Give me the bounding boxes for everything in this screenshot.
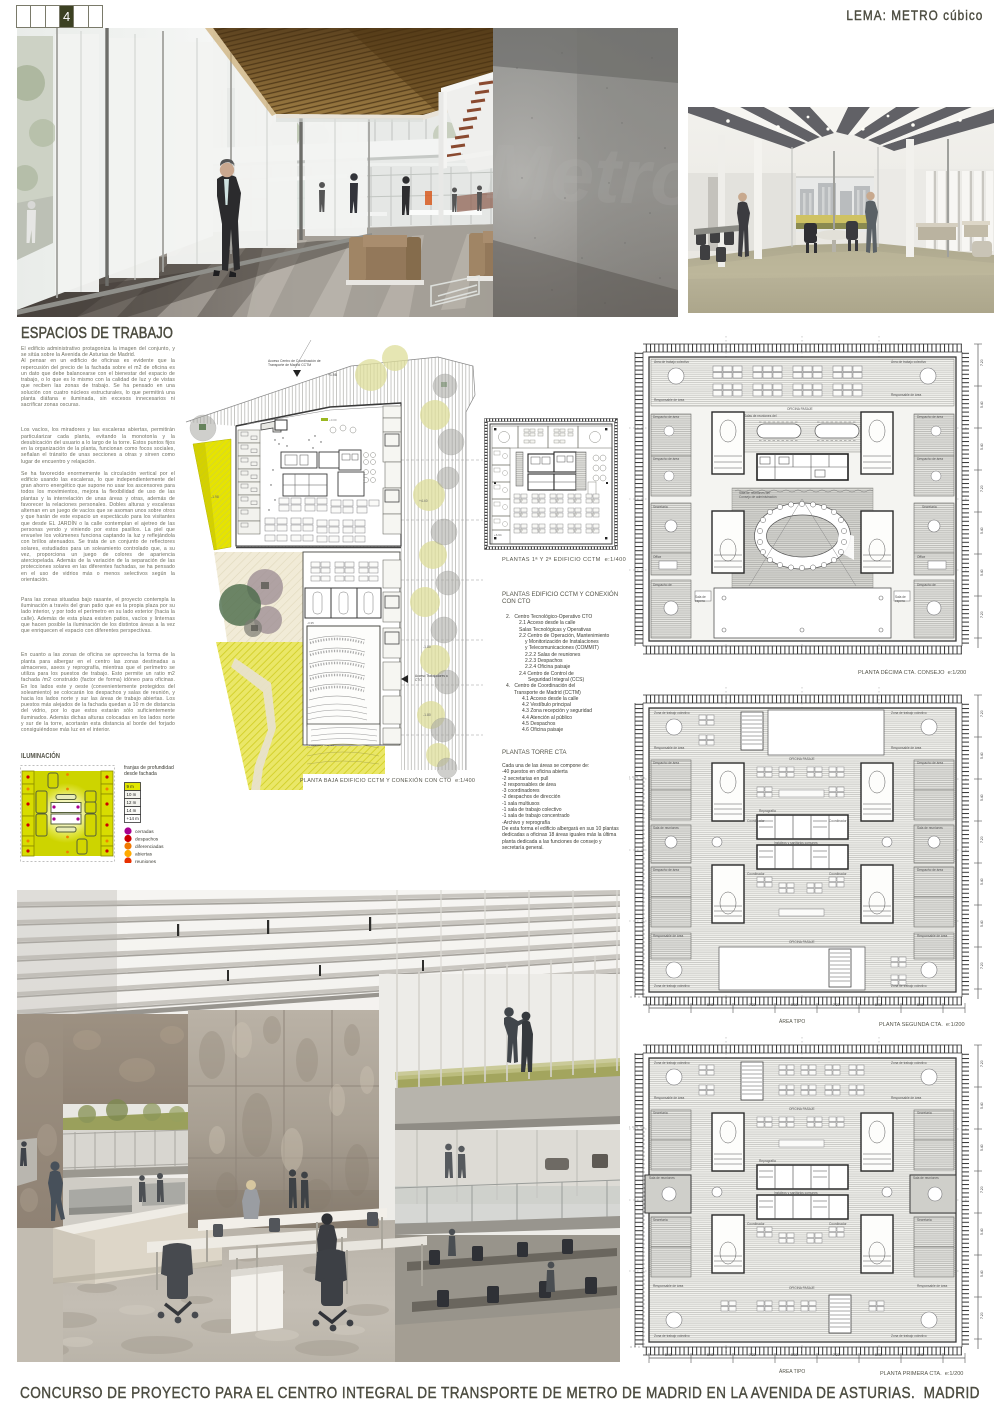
svg-text:-1.98: -1.98 [211, 495, 219, 499]
svg-text:Coordinador: Coordinador [747, 819, 765, 823]
svg-text:5.40: 5.40 [875, 1003, 882, 1007]
svg-text:5.40: 5.40 [980, 1144, 984, 1151]
svg-text:Coordinador: Coordinador [829, 819, 847, 823]
svg-text:Sala de reuniones: Sala de reuniones [913, 1176, 939, 1180]
svg-text:cerradas: cerradas [135, 829, 154, 835]
svg-text:5.40: 5.40 [980, 401, 984, 408]
svg-text:abiertas: abiertas [135, 852, 153, 858]
svg-text:Zona de trabajo colectivo: Zona de trabajo colectivo [654, 1061, 690, 1065]
svg-text:7.20: 7.20 [749, 1353, 756, 1357]
svg-text:despachos: despachos [135, 837, 159, 843]
svg-text:Responsable de área: Responsable de área [654, 746, 685, 750]
svg-text:Secretaría: Secretaría [653, 505, 668, 509]
svg-text:Responsable de área: Responsable de área [917, 1284, 948, 1288]
svg-text:Despacho de área: Despacho de área [653, 457, 679, 461]
svg-text:Office: Office [917, 555, 925, 559]
svg-text:7.20: 7.20 [980, 359, 984, 366]
svg-text:Responsable de área: Responsable de área [653, 1284, 684, 1288]
svg-text:OFICINA PASAJE: OFICINA PASAJE [789, 940, 815, 944]
svg-text:Zona de trabajo colectivo: Zona de trabajo colectivo [891, 984, 927, 988]
svg-text:Zona de trabajo colectivo: Zona de trabajo colectivo [891, 1061, 927, 1065]
svg-text:Responsable de área: Responsable de área [891, 1096, 922, 1100]
svg-text:Coordinador: Coordinador [829, 872, 847, 876]
svg-text:7.20: 7.20 [749, 1003, 756, 1007]
svg-text:Despacho de: Despacho de [917, 583, 936, 587]
svg-text:Zona de trabajo colectivo: Zona de trabajo colectivo [654, 984, 690, 988]
svg-text:7.20: 7.20 [980, 1060, 984, 1067]
svg-text:5.40: 5.40 [980, 569, 984, 576]
svg-text:Reprografía: Reprografía [759, 809, 776, 813]
svg-text:Zona de trabajo colectivo: Zona de trabajo colectivo [654, 1334, 690, 1338]
svg-text:Responsable de área: Responsable de área [654, 398, 685, 402]
svg-text:5.40: 5.40 [980, 752, 984, 759]
svg-text:5.40: 5.40 [980, 878, 984, 885]
svg-text:Metro: Metro [484, 127, 678, 222]
svg-text:7.20: 7.20 [980, 485, 984, 492]
svg-text:CTO: CTO [415, 678, 422, 682]
svg-text:-3.35: -3.35 [307, 621, 314, 625]
svg-text:5.40: 5.40 [917, 1353, 924, 1357]
svg-text:Sala de reuniones: Sala de reuniones [653, 826, 679, 830]
svg-text:Despacho de área: Despacho de área [917, 868, 943, 872]
svg-text:-1.80: -1.80 [423, 713, 431, 717]
svg-text:12 m: 12 m [127, 800, 137, 805]
svg-text:5.40: 5.40 [707, 1003, 714, 1007]
svg-text:Despacho de área: Despacho de área [653, 868, 679, 872]
svg-text:5.40: 5.40 [665, 1003, 672, 1007]
svg-text:Sala de reuniones: Sala de reuniones [917, 826, 943, 830]
svg-text:7.20: 7.20 [980, 962, 984, 969]
svg-text:Despacho de área: Despacho de área [653, 761, 679, 765]
svg-text:OFICINA PASAJE: OFICINA PASAJE [789, 1286, 815, 1290]
svg-text:Office: Office [653, 555, 661, 559]
svg-text:Responsable de área: Responsable de área [653, 934, 684, 938]
svg-text:Despacho de área: Despacho de área [917, 457, 943, 461]
svg-text:OFICINA PASAJE: OFICINA PASAJE [789, 1107, 815, 1111]
svg-text:5.40: 5.40 [665, 1353, 672, 1357]
svg-text:Coordinador: Coordinador [747, 1222, 765, 1226]
svg-text:espera: espera [695, 599, 705, 603]
svg-text:7.20: 7.20 [980, 710, 984, 717]
svg-text:Coordinador: Coordinador [829, 1222, 847, 1226]
svg-text:Despacho de área: Despacho de área [917, 761, 943, 765]
svg-text:Responsable de área: Responsable de área [917, 934, 948, 938]
svg-text:7.20: 7.20 [980, 1312, 984, 1319]
svg-text:diferenciadas: diferenciadas [135, 844, 164, 850]
svg-text:Secretaría: Secretaría [917, 1111, 932, 1115]
svg-text:Zona de trabajo colectivo: Zona de trabajo colectivo [891, 1334, 927, 1338]
svg-text:7.20: 7.20 [980, 1186, 984, 1193]
svg-text:5.40: 5.40 [980, 920, 984, 927]
svg-text:Área de trabajo colectivo: Área de trabajo colectivo [891, 360, 926, 364]
svg-text:10 m: 10 m [127, 792, 137, 797]
svg-text:7.20: 7.20 [980, 611, 984, 618]
svg-text:5.40: 5.40 [980, 527, 984, 534]
svg-text:9.00: 9.00 [791, 1353, 798, 1357]
svg-text:OFICINA PASAJE: OFICINA PASAJE [789, 757, 815, 761]
svg-text:Responsable de área: Responsable de área [891, 746, 922, 750]
svg-text:5.40: 5.40 [980, 1228, 984, 1235]
svg-text:14 m: 14 m [127, 808, 137, 813]
svg-text:+4.40: +4.40 [419, 499, 428, 503]
svg-text:5.40: 5.40 [875, 1353, 882, 1357]
svg-text:Instáleos y sanitários comunes: Instáleos y sanitários comunes [774, 1191, 818, 1195]
svg-text:reuniones: reuniones [135, 859, 157, 863]
svg-text:OFICINA PASAJE: OFICINA PASAJE [787, 407, 813, 411]
svg-text:Área de trabajo colectivo: Área de trabajo colectivo [654, 360, 689, 364]
svg-text:+6.64: +6.64 [494, 533, 502, 537]
svg-text:Coordinador: Coordinador [747, 872, 765, 876]
svg-text:Secretaría: Secretaría [922, 505, 937, 509]
svg-text:5.40: 5.40 [980, 794, 984, 801]
svg-text:Responsable de área: Responsable de área [891, 393, 922, 397]
svg-text:-1.80: -1.80 [423, 645, 431, 649]
svg-text:Zona de trabajo colectivo: Zona de trabajo colectivo [891, 711, 927, 715]
svg-text:7.20: 7.20 [980, 836, 984, 843]
svg-text:Despacho de área: Despacho de área [653, 415, 679, 419]
svg-text:Despacho de: Despacho de [653, 583, 672, 587]
svg-text:Secretaría: Secretaría [653, 1218, 668, 1222]
svg-text:Despacho de área: Despacho de área [917, 415, 943, 419]
svg-text:Secretaría: Secretaría [653, 1111, 668, 1115]
svg-text:+1.98: +1.98 [328, 373, 337, 377]
svg-text:Reprografía: Reprografía [759, 1159, 776, 1163]
svg-text:7.20: 7.20 [833, 1003, 840, 1007]
svg-text:5.40: 5.40 [707, 1353, 714, 1357]
svg-text:+14 m: +14 m [127, 816, 140, 821]
svg-text:5.40: 5.40 [917, 1003, 924, 1007]
svg-text:espera: espera [895, 599, 905, 603]
svg-text:7.20: 7.20 [833, 1353, 840, 1357]
svg-text:Zona de trabajo colectivo: Zona de trabajo colectivo [654, 711, 690, 715]
svg-text:Instáleos y sanitários comunes: Instáleos y sanitários comunes [774, 841, 818, 845]
svg-text:Consejo de administración: Consejo de administración [739, 495, 777, 499]
svg-text:5.40: 5.40 [980, 443, 984, 450]
svg-text:5.40: 5.40 [980, 1102, 984, 1109]
svg-text:Transporte de Madrid CCTM: Transporte de Madrid CCTM [268, 363, 311, 367]
svg-text:Sala de reuniones: Sala de reuniones [649, 1176, 675, 1180]
svg-text:5.40: 5.40 [980, 1270, 984, 1277]
svg-text:Responsable de área: Responsable de área [654, 1096, 685, 1100]
svg-text:9.00: 9.00 [791, 1003, 798, 1007]
svg-text:+0.00: +0.00 [329, 418, 337, 422]
svg-text:9 m: 9 m [127, 784, 135, 789]
svg-text:Secretaría: Secretaría [917, 1218, 932, 1222]
svg-text:Salas de reuniones del: Salas de reuniones del [744, 414, 777, 418]
